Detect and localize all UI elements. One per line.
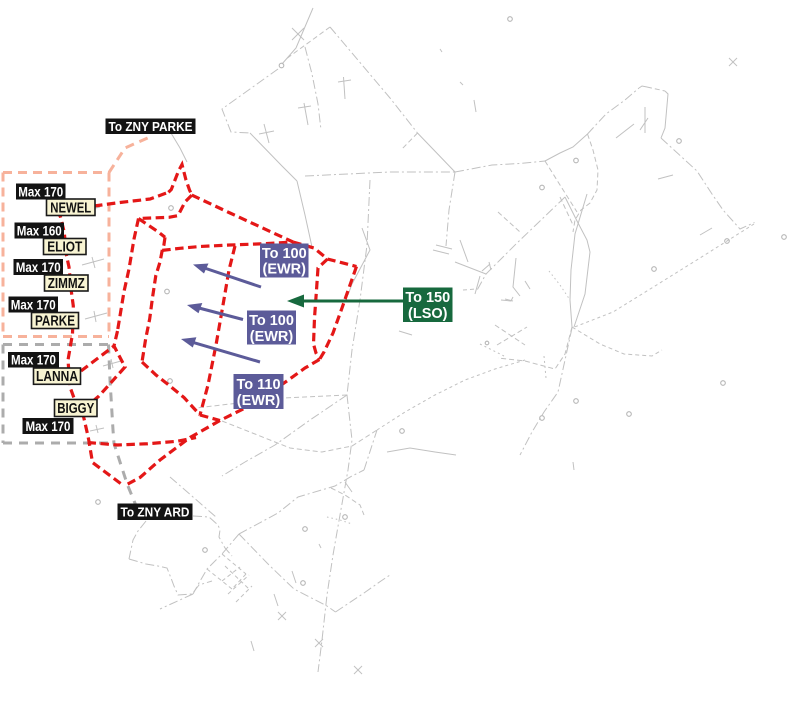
- svg-text:Max 170: Max 170: [16, 260, 61, 275]
- svg-text:Max 170: Max 170: [11, 353, 56, 368]
- svg-text:BIGGY: BIGGY: [57, 400, 94, 417]
- svg-text:(EWR): (EWR): [237, 393, 281, 409]
- svg-text:ELIOT: ELIOT: [47, 239, 82, 256]
- svg-text:To 150: To 150: [405, 290, 450, 306]
- svg-text:To 100: To 100: [262, 246, 307, 262]
- svg-text:(LSO): (LSO): [408, 306, 448, 322]
- svg-text:To ZNY ARD: To ZNY ARD: [121, 505, 190, 520]
- svg-text:Max 170: Max 170: [18, 185, 63, 200]
- svg-text:Max 170: Max 170: [11, 298, 56, 313]
- svg-text:(EWR): (EWR): [263, 262, 307, 278]
- svg-text:To 100: To 100: [249, 313, 294, 329]
- svg-text:Max 170: Max 170: [26, 419, 71, 434]
- svg-text:To 110: To 110: [236, 377, 280, 393]
- svg-text:Max 160: Max 160: [17, 224, 62, 239]
- svg-text:NEWEL: NEWEL: [50, 200, 91, 217]
- svg-text:PARKE: PARKE: [35, 313, 75, 330]
- svg-text:ZIMMZ: ZIMMZ: [48, 275, 85, 292]
- svg-text:To ZNY PARKE: To ZNY PARKE: [109, 119, 193, 134]
- svg-text:LANNA: LANNA: [36, 368, 78, 385]
- svg-text:(EWR): (EWR): [250, 329, 294, 345]
